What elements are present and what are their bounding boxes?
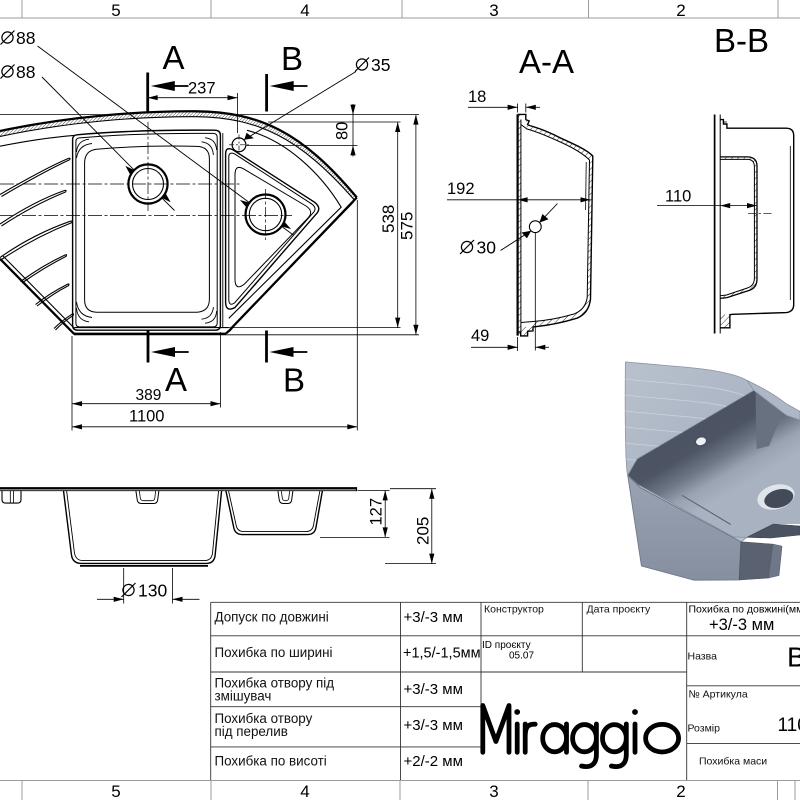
svg-text:88: 88 [16, 62, 35, 82]
svg-text:130: 130 [138, 581, 167, 601]
svg-text:1100: 1100 [129, 408, 164, 426]
svg-text:+1,5/-1,5мм: +1,5/-1,5мм [403, 646, 481, 662]
svg-text:Похибка по довжині(мм): Похибка по довжині(мм) [689, 604, 800, 616]
svg-text:Дата проєкту: Дата проєкту [587, 604, 652, 616]
svg-text:3: 3 [489, 782, 498, 800]
svg-text:+2/-2 мм: +2/-2 мм [404, 753, 463, 770]
svg-text:Конструктор: Конструктор [484, 604, 544, 616]
svg-text:під перелив: під перелив [215, 724, 288, 739]
svg-text:389: 389 [136, 387, 162, 404]
svg-text:575: 575 [398, 212, 417, 240]
svg-text:127: 127 [368, 498, 386, 526]
svg-text:+3/-3 мм: +3/-3 мм [709, 616, 774, 634]
svg-text:110: 110 [665, 188, 691, 206]
svg-text:237: 237 [188, 80, 216, 98]
svg-text:A-A: A-A [519, 43, 574, 80]
svg-text:+3/-3 мм: +3/-3 мм [404, 717, 463, 734]
svg-text:Розмір: Розмір [688, 723, 721, 735]
svg-text:змішувач: змішувач [215, 689, 272, 704]
svg-text:В: В [787, 642, 800, 673]
svg-text:205: 205 [413, 517, 432, 545]
svg-text:Похибка по ширині: Похибка по ширині [215, 645, 333, 660]
svg-text:2: 2 [676, 782, 685, 800]
svg-text:05.07: 05.07 [509, 651, 534, 662]
svg-text:Похибка маси: Похибка маси [699, 756, 767, 768]
svg-text:3: 3 [489, 1, 498, 20]
svg-text:A: A [165, 361, 187, 398]
svg-text:4: 4 [300, 782, 309, 800]
svg-text:Похибка по висоті: Похибка по висоті [215, 754, 327, 769]
svg-text:88: 88 [16, 28, 35, 48]
svg-text:№ Артикула: № Артикула [689, 689, 748, 701]
svg-text:+3/-3 мм: +3/-3 мм [404, 609, 463, 626]
svg-text:+3/-3 мм: +3/-3 мм [404, 681, 463, 698]
svg-text:4: 4 [300, 1, 309, 20]
svg-text:5: 5 [111, 782, 120, 800]
svg-text:30: 30 [477, 238, 497, 258]
svg-text:B: B [281, 40, 303, 77]
svg-text:192: 192 [447, 180, 475, 198]
svg-text:Назва: Назва [688, 651, 718, 663]
svg-text:ID проєкту: ID проєкту [482, 640, 531, 651]
svg-text:B-B: B-B [714, 22, 769, 59]
svg-text:2: 2 [676, 1, 685, 20]
svg-text:35: 35 [371, 55, 390, 75]
svg-text:A: A [163, 39, 185, 76]
svg-text:538: 538 [379, 205, 398, 233]
svg-text:1100: 1100 [778, 715, 800, 736]
svg-text:B: B [283, 362, 305, 399]
svg-text:5: 5 [111, 1, 120, 20]
svg-text:49: 49 [471, 327, 489, 345]
svg-text:Допуск по довжині: Допуск по довжині [215, 610, 329, 625]
svg-text:18: 18 [468, 88, 486, 106]
svg-text:80: 80 [334, 122, 352, 140]
